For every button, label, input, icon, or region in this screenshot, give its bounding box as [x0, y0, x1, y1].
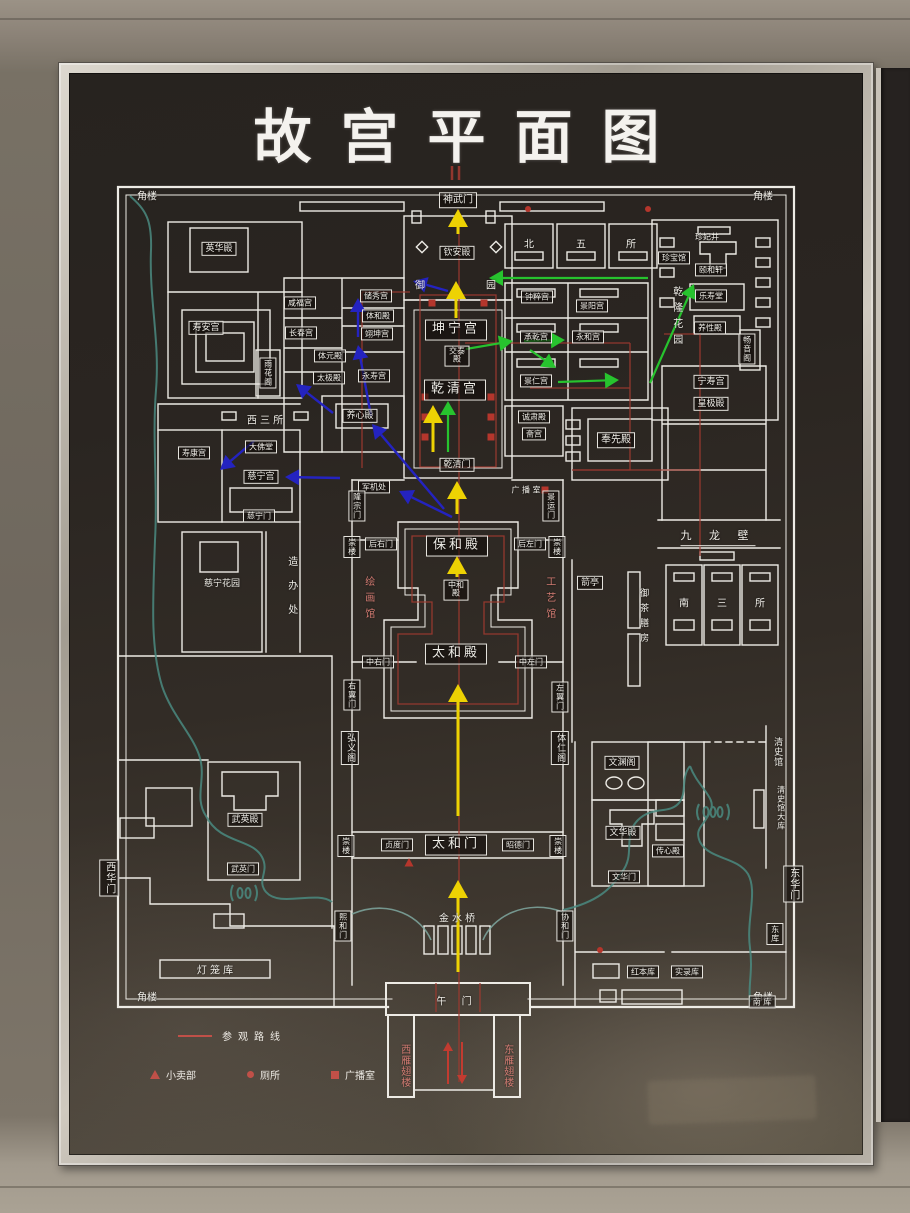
- route-arrow-blue: [399, 490, 452, 517]
- route-arrow-blue: [413, 277, 448, 292]
- palace-walls: [118, 187, 794, 1097]
- route-arrow-yellow: [448, 209, 468, 234]
- route-line-icon: [178, 1035, 212, 1037]
- marker-square: [429, 300, 436, 307]
- marker-square: [542, 487, 549, 494]
- tour-route-lines: [362, 166, 700, 1082]
- toilet-icon: [247, 1071, 254, 1078]
- broadcast-icon: [331, 1071, 339, 1079]
- photo-of-map-board: 故宫平面图: [0, 0, 910, 1213]
- route-arrow-blue: [350, 298, 366, 337]
- marker-square: [422, 434, 429, 441]
- route-arrow-green: [558, 372, 619, 388]
- route-arrow-yellow: [447, 481, 467, 514]
- route-arrow-green: [440, 401, 456, 452]
- page-title: 故宫平面图: [133, 90, 809, 174]
- kiosk-icon: [150, 1070, 160, 1079]
- marker-dot: [645, 206, 651, 212]
- map-legend: 参观路线 小卖部 厕所 广播室: [150, 1028, 390, 1082]
- marker-square: [481, 300, 488, 307]
- legend-kiosk-label: 小卖部: [166, 1067, 196, 1082]
- route-arrow-yellow: [448, 880, 468, 972]
- marker-dot: [525, 206, 531, 212]
- marker-triangle: [405, 858, 414, 867]
- palace-plan-drawing: [0, 0, 910, 1213]
- legend-broadcast-label: 广播室: [345, 1067, 375, 1082]
- route-arrow-blue: [220, 441, 254, 470]
- marker-square: [422, 394, 429, 401]
- route-arrow-green: [524, 332, 565, 348]
- route-arrow-red: [443, 1042, 453, 1084]
- marker-square: [488, 434, 495, 441]
- route-arrows: [220, 209, 696, 1084]
- marker-square: [488, 414, 495, 421]
- marker-square: [488, 394, 495, 401]
- route-arrow-yellow: [447, 556, 467, 577]
- route-arrow-yellow: [423, 405, 443, 452]
- legend-toilet-label: 厕所: [260, 1067, 280, 1082]
- jinshui-river: [130, 196, 752, 1002]
- marker-dot: [597, 947, 603, 953]
- legend-route-label: 参观路线: [222, 1028, 286, 1043]
- route-arrow-blue: [285, 469, 340, 485]
